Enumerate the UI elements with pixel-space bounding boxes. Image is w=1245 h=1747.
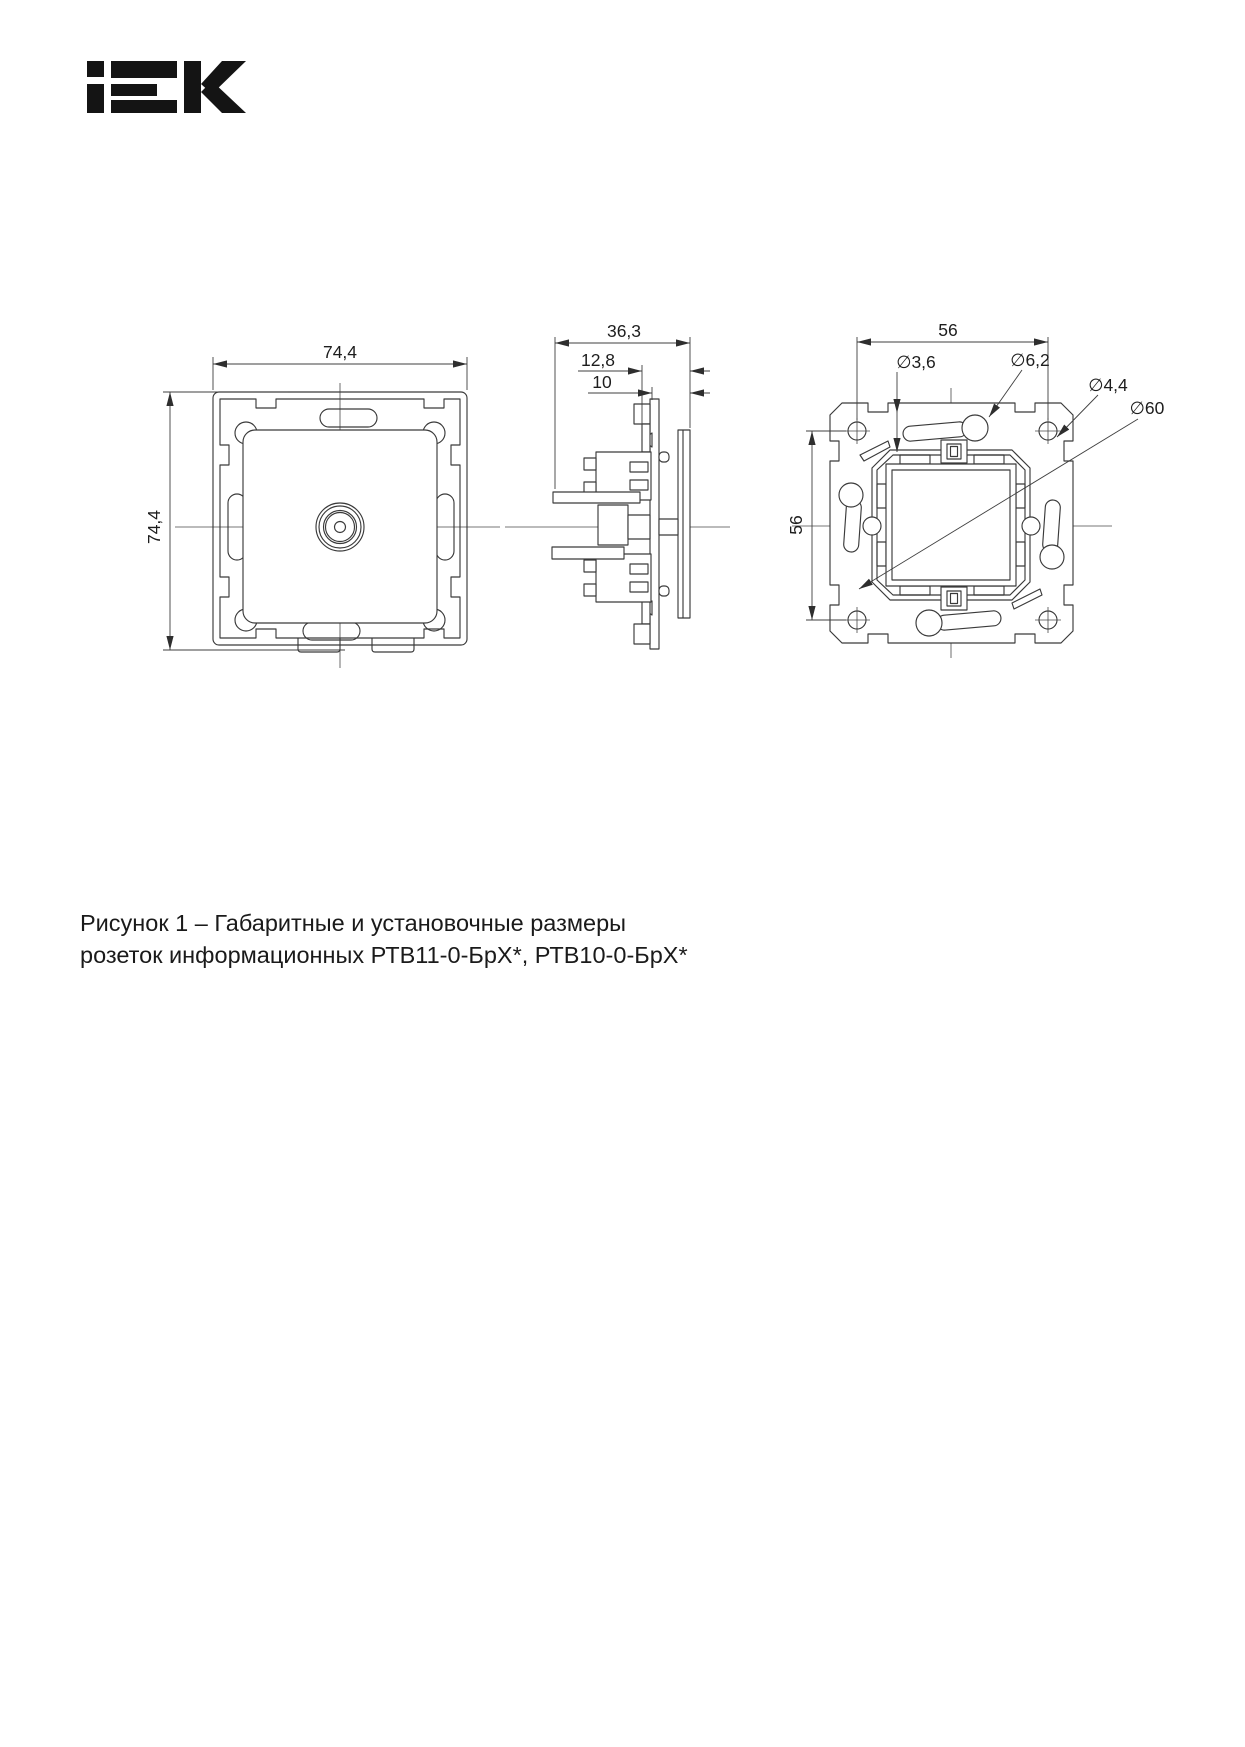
dim-rear-height: 56 <box>786 515 806 534</box>
dim-rear-width: 56 <box>938 320 957 340</box>
dim-front-width: 74,4 <box>323 342 357 362</box>
dim-side-depth-frame: 10 <box>592 372 612 392</box>
dia-slot-label: ∅6,2 <box>1010 350 1050 370</box>
figure-caption-line1: Рисунок 1 – Габаритные и установочные ра… <box>80 907 720 939</box>
dim-side-depth-total: 36,3 <box>607 321 641 341</box>
dim-front-height: 74,4 <box>144 510 164 544</box>
dia-screw-hole-label: ∅4,4 <box>1088 375 1128 395</box>
rear-view: 56 56 ∅3,6 ∅6,2 ∅4,4 ∅60 <box>786 320 1165 658</box>
figure-caption: Рисунок 1 – Габаритные и установочные ра… <box>80 907 720 971</box>
dia-box-label: ∅60 <box>1130 398 1165 418</box>
figure-caption-line2: розеток информационных РТВ11-0-БрХ*, РТВ… <box>80 939 720 971</box>
front-view: 74,4 74,4 <box>144 342 500 668</box>
dia-claw-hole-label: ∅3,6 <box>896 352 936 372</box>
page: { "logo": { "alt": "IEK" }, "figure": { … <box>0 0 1245 1747</box>
side-view: 36,3 12,8 10 <box>505 321 730 649</box>
figure-drawing: 74,4 74,4 <box>0 0 1245 780</box>
iek-logo <box>87 61 246 113</box>
dim-side-depth-cover: 12,8 <box>581 350 615 370</box>
